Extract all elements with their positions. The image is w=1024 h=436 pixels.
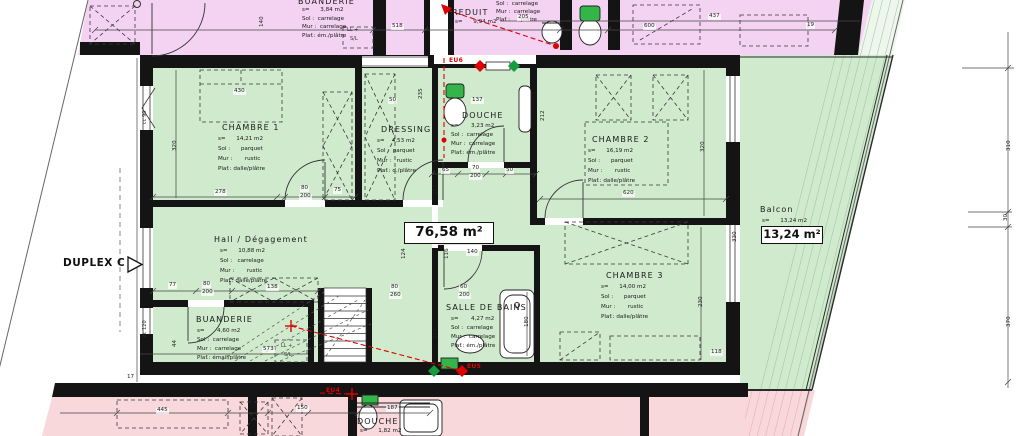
floor-plan-canvas: DUPLEX C 76,58 m² 13,24 m² CHAMBRE 1s= 1… bbox=[0, 0, 1024, 436]
dimension-label: 30 bbox=[1004, 213, 1010, 222]
dimension-label: 212 bbox=[541, 109, 547, 122]
dimension-label: 77 bbox=[168, 283, 177, 289]
dimension-label: 518 bbox=[391, 24, 404, 30]
room-spec-line: s= 3,84 m2 bbox=[302, 8, 344, 14]
room-spec-line: Mur : rustic bbox=[377, 159, 412, 165]
eu-marker-label: EU6 bbox=[448, 58, 464, 64]
dimension-label: 320 bbox=[173, 139, 179, 152]
room-name-label: Balcon bbox=[760, 206, 794, 214]
room-spec-line: Sol : carrelage bbox=[302, 17, 344, 23]
room-spec-line: Plaf.: ém./plâtre bbox=[451, 151, 495, 157]
dimension-label: 50 bbox=[505, 168, 514, 174]
duplex-arrow-icon bbox=[126, 256, 146, 274]
dimension-label: 370 bbox=[1007, 315, 1013, 328]
room-spec-line: s= 14,21 m2 bbox=[218, 137, 263, 143]
dimension-label: 620 bbox=[622, 191, 635, 197]
room-spec-line: Sol : carrelage bbox=[197, 338, 239, 344]
dimension-label: LL + bbox=[280, 344, 293, 349]
room-spec-line: Mur : carrelage bbox=[451, 335, 495, 341]
room-name-label: CHAMBRE 1 bbox=[222, 124, 280, 132]
room-spec-line: Plaf.: dalle/plâtre bbox=[601, 315, 648, 321]
dimension-label: 80 bbox=[390, 285, 399, 291]
dimension-label: 260 bbox=[389, 293, 402, 299]
dimension-label: 118 bbox=[710, 350, 723, 356]
dimension-label: 140 bbox=[260, 15, 266, 28]
dimension-label: 187 bbox=[386, 406, 399, 412]
dimension-label: 50 bbox=[388, 98, 397, 104]
dimension-label: 230 bbox=[699, 295, 705, 308]
total-area-badge: 76,58 m² bbox=[404, 222, 494, 244]
room-spec-line: s= 4,27 m2 bbox=[451, 317, 494, 323]
room-spec-line: Plaf.: d./plâtre bbox=[377, 169, 416, 175]
room-spec-line: s= 1,82 m2 bbox=[360, 429, 402, 435]
dimension-label: 320 bbox=[701, 140, 707, 153]
dimension-label: 70 bbox=[471, 166, 480, 172]
dimension-label: 180 bbox=[525, 315, 531, 328]
dimension-label: 137 bbox=[471, 98, 484, 104]
dimension-label: cc 90 bbox=[143, 110, 148, 125]
room-spec-line: Plaf.: dalle/plâtre bbox=[220, 279, 267, 285]
dimension-label: 124 bbox=[402, 247, 408, 260]
dimension-label: 310 bbox=[1007, 139, 1013, 152]
room-name-label: Hall / Dégagement bbox=[214, 236, 308, 244]
eu-marker-label: EU4 bbox=[325, 388, 341, 394]
dimension-label: 60 bbox=[459, 285, 468, 291]
dimension-label: 150 bbox=[296, 406, 309, 412]
room-name-label: SALLE DE BAINS bbox=[446, 304, 527, 312]
room-spec-line: s= 4,53 m2 bbox=[377, 139, 415, 145]
room-spec-line: Mur : rustic bbox=[601, 305, 643, 311]
duplex-unit-label: DUPLEX C bbox=[63, 257, 125, 269]
dimension-label: 330 bbox=[733, 230, 739, 243]
dimension-label: 200 bbox=[299, 194, 312, 200]
room-spec-line: Plaf.: dalle/plâtre bbox=[588, 179, 635, 185]
dimension-label: 200 bbox=[458, 293, 471, 299]
room-spec-line: Mur : rustic bbox=[218, 157, 260, 163]
room-spec-line: s= 14,00 m2 bbox=[601, 285, 646, 291]
dimension-label: 65 bbox=[441, 168, 450, 174]
dimension-label: 75 bbox=[333, 188, 342, 194]
room-spec-line: Mur : carrelage bbox=[197, 347, 241, 353]
room-name-label: DOUCHE bbox=[462, 112, 504, 120]
room-spec-line: Plaf.: ém./plâtre bbox=[451, 344, 495, 350]
room-spec-line: Sol : carrelage bbox=[220, 259, 264, 265]
dimension-label: 117 bbox=[434, 183, 440, 196]
dimension-label: 17 bbox=[126, 375, 135, 381]
room-spec-line: Sol : parquet bbox=[588, 159, 633, 165]
dimension-label: cc 120 bbox=[143, 319, 148, 338]
room-spec-line: s= 10,88 m2 bbox=[220, 249, 265, 255]
dimension-label: 600 bbox=[643, 24, 656, 30]
dimension-label: 573 bbox=[262, 347, 275, 353]
eu-marker-label: EU5 bbox=[466, 364, 482, 370]
dimension-label: 200 bbox=[469, 174, 482, 180]
room-name-label: DRESSING bbox=[381, 126, 431, 134]
dimension-label: S/L bbox=[283, 353, 293, 358]
room-spec-line: Mur : rustic bbox=[588, 169, 630, 175]
dimension-label: 445 bbox=[156, 408, 169, 414]
room-spec-line: Plaf.: ém./plâtre bbox=[302, 34, 346, 40]
room-spec-line: Sol : parquet bbox=[218, 147, 263, 153]
room-spec-line: s= 16,19 m2 bbox=[588, 149, 633, 155]
room-name-label: BUANDERIE bbox=[196, 316, 253, 324]
room-spec-line: s= 13,24 m2 bbox=[762, 219, 807, 225]
room-name-label: DOUCHE bbox=[357, 418, 399, 426]
balcony-area-badge: 13,24 m² bbox=[761, 226, 823, 244]
room-name-label: CHAMBRE 3 bbox=[606, 272, 664, 280]
room-spec-line: Sol : parquet bbox=[377, 149, 415, 155]
room-spec-line: Sol : carrelage bbox=[451, 133, 493, 139]
room-spec-line: s= 3,23 m2 bbox=[451, 124, 494, 130]
room-spec-line: Mur : carrelage bbox=[302, 25, 346, 31]
dimension-label: 140 bbox=[466, 250, 479, 256]
dimension-label: 437 bbox=[708, 14, 721, 20]
room-name-label: BUANDERIE bbox=[298, 0, 355, 6]
dimension-label: 44 bbox=[173, 339, 179, 348]
dimension-label: S/L bbox=[349, 37, 359, 42]
dimension-label: 278 bbox=[214, 190, 227, 196]
room-spec-line: Mur : carrelage bbox=[451, 142, 495, 148]
room-spec-line: s= 4,60 m2 bbox=[197, 329, 240, 335]
room-name-label: CHAMBRE 2 bbox=[592, 136, 650, 144]
room-spec-line: Plaf.: dalle/plâtre bbox=[218, 167, 265, 173]
room-spec-line: Sol : carrelage bbox=[496, 2, 538, 8]
dimension-label: 207 bbox=[434, 327, 440, 340]
dimension-label: 138 bbox=[266, 285, 279, 291]
dimension-label: 205 bbox=[517, 15, 530, 21]
dimension-label: 200 bbox=[201, 290, 214, 296]
dimension-label: 80 bbox=[202, 282, 211, 288]
dimension-label: 235 bbox=[419, 87, 425, 100]
room-spec-line: s= 9,94 m2 bbox=[455, 20, 497, 26]
dimension-label: LL + bbox=[346, 28, 359, 33]
dimension-label: 116 bbox=[445, 247, 451, 260]
labels-overlay: DUPLEX C 76,58 m² 13,24 m² CHAMBRE 1s= 1… bbox=[0, 0, 1024, 436]
dimension-label: 19 bbox=[806, 23, 815, 29]
room-spec-line: Plaf.: émail/plâtre bbox=[197, 356, 246, 362]
room-name-label: REDUIT bbox=[452, 9, 488, 17]
room-spec-line: Sol : parquet bbox=[601, 295, 646, 301]
room-spec-line: Sol : carrelage bbox=[451, 326, 493, 332]
dimension-label: 80 bbox=[300, 186, 309, 192]
room-spec-line: Mur : rustic bbox=[220, 269, 262, 275]
dimension-label: 430 bbox=[233, 89, 246, 95]
